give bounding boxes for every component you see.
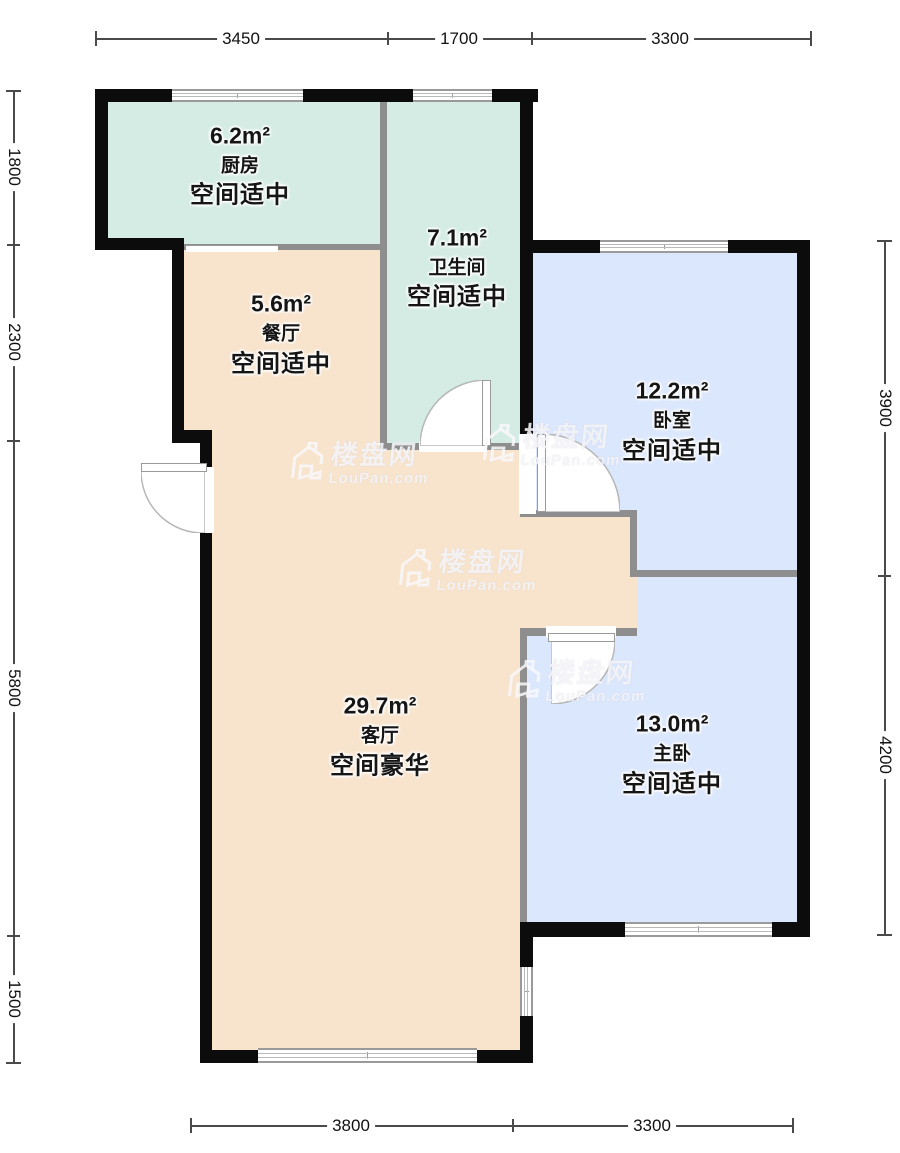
floor-plan: 楼盘网 LouPan.com 楼盘网 LouPan.com 楼盘网 LouPan… bbox=[0, 0, 900, 1153]
dim-line-right bbox=[884, 240, 886, 935]
kitchen-opening bbox=[186, 245, 278, 252]
wall-right bbox=[797, 240, 810, 937]
dim-bottom-2: 3300 bbox=[628, 1116, 676, 1136]
living-area: 29.7m² bbox=[344, 693, 417, 720]
entry-door-arc bbox=[141, 471, 205, 533]
bathroom-status: 空间适中 bbox=[407, 277, 507, 312]
wall-hallway-right bbox=[630, 510, 637, 577]
wall-bathroom-right bbox=[520, 89, 533, 434]
living-status: 空间豪华 bbox=[330, 746, 430, 781]
bathroom-door-leaf bbox=[482, 380, 491, 446]
dim-line-left bbox=[13, 90, 15, 1063]
dim-top-2: 1700 bbox=[435, 29, 483, 49]
dim-left-2: 2300 bbox=[4, 318, 24, 366]
kitchen-status: 空间适中 bbox=[190, 175, 290, 210]
wall-kitchen-bathroom bbox=[380, 95, 387, 450]
dim-tick bbox=[792, 1118, 794, 1133]
dining-area: 5.6m² bbox=[251, 291, 311, 318]
dim-tick bbox=[190, 1118, 192, 1133]
dim-top-1: 3450 bbox=[217, 29, 265, 49]
bathroom-area: 7.1m² bbox=[427, 225, 487, 252]
dim-tick bbox=[7, 440, 20, 442]
dim-tick bbox=[878, 575, 891, 577]
dim-tick bbox=[877, 934, 892, 936]
living-side-window bbox=[520, 967, 533, 1016]
bedroom-door-opening bbox=[519, 434, 536, 514]
wall-kitchen-left bbox=[95, 89, 108, 250]
dim-left-3: 5800 bbox=[4, 664, 24, 712]
master-bedroom-window bbox=[625, 922, 772, 937]
dim-bottom-1: 3800 bbox=[327, 1116, 375, 1136]
dining-name: 餐厅 bbox=[262, 319, 300, 346]
dim-left-4: 1500 bbox=[4, 975, 24, 1023]
wall-kitchen-bottom bbox=[95, 238, 184, 250]
dim-tick bbox=[6, 1062, 21, 1064]
dim-line-bottom bbox=[190, 1125, 792, 1127]
master-door-arc bbox=[551, 640, 615, 704]
master-status: 空间适中 bbox=[622, 764, 722, 799]
dim-tick bbox=[531, 32, 533, 45]
bedroom-area: 12.2m² bbox=[636, 378, 709, 405]
dim-tick bbox=[877, 240, 892, 242]
dim-tick bbox=[512, 1119, 514, 1132]
dim-tick bbox=[95, 31, 97, 46]
wall-master-left bbox=[520, 628, 527, 930]
master-door-leaf bbox=[548, 633, 615, 642]
living-bottom-window bbox=[258, 1048, 477, 1063]
dim-top-3: 3300 bbox=[646, 29, 694, 49]
dining-status: 空间适中 bbox=[231, 344, 331, 379]
dim-left-1: 1800 bbox=[4, 143, 24, 191]
bedroom-name: 卧室 bbox=[653, 406, 691, 433]
bathroom-window bbox=[413, 89, 492, 102]
bedroom-door-leaf bbox=[537, 434, 546, 512]
bathroom-name: 卫生间 bbox=[428, 253, 485, 280]
bathroom-door-arc bbox=[420, 380, 486, 446]
hallway-floor bbox=[524, 510, 637, 636]
kitchen-area: 6.2m² bbox=[210, 123, 270, 150]
living-name: 客厅 bbox=[361, 721, 399, 748]
dim-right-2: 4200 bbox=[875, 731, 895, 779]
dim-right-1: 3900 bbox=[875, 384, 895, 432]
dim-tick bbox=[810, 31, 812, 46]
dim-tick bbox=[6, 90, 21, 92]
bedroom-status: 空间适中 bbox=[622, 431, 722, 466]
dim-tick bbox=[7, 935, 20, 937]
entry-door-leaf bbox=[141, 463, 207, 472]
dim-tick bbox=[7, 244, 20, 246]
bedroom-window bbox=[600, 240, 728, 253]
master-area: 13.0m² bbox=[636, 711, 709, 738]
bedroom-door-arc bbox=[542, 434, 620, 512]
wall-bedrooms-divider bbox=[630, 570, 797, 577]
dim-tick bbox=[387, 32, 389, 45]
kitchen-name: 厨房 bbox=[221, 151, 259, 178]
master-name: 主卧 bbox=[653, 739, 691, 766]
wall-dining-left bbox=[172, 238, 184, 443]
kitchen-window bbox=[172, 89, 303, 102]
